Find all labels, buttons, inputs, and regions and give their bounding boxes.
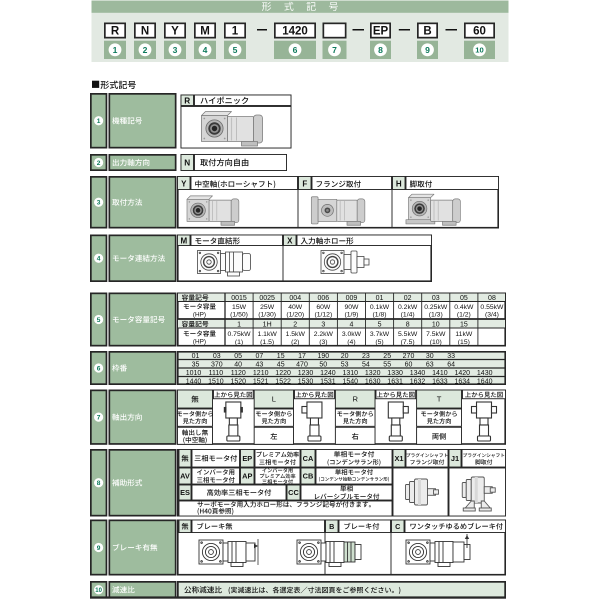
svg-text:8: 8 <box>378 45 383 55</box>
svg-text:7: 7 <box>97 415 101 422</box>
svg-text:30: 30 <box>426 353 434 360</box>
svg-text:40W: 40W <box>288 304 303 311</box>
svg-text:EP: EP <box>373 26 389 38</box>
svg-text:L: L <box>272 395 276 404</box>
svg-text:1640: 1640 <box>477 378 493 385</box>
svg-text:370: 370 <box>211 361 223 368</box>
svg-text:0.25kW: 0.25kW <box>424 304 448 311</box>
svg-text:R: R <box>111 26 120 38</box>
svg-text:1.1kW: 1.1kW <box>258 331 278 338</box>
svg-text:1631: 1631 <box>387 378 403 385</box>
svg-text:(1/50): (1/50) <box>230 312 248 319</box>
svg-text:9: 9 <box>97 545 101 552</box>
svg-text:AP: AP <box>242 472 252 481</box>
svg-text:004: 004 <box>289 295 301 302</box>
svg-text:03: 03 <box>213 353 221 360</box>
svg-text:(1/12): (1/12) <box>314 312 332 319</box>
svg-text:4: 4 <box>349 322 353 329</box>
svg-text:4: 4 <box>97 256 101 263</box>
svg-text:1632: 1632 <box>410 378 426 385</box>
svg-text:08: 08 <box>488 295 496 302</box>
svg-text:2: 2 <box>143 45 148 55</box>
svg-text:3.7kW: 3.7kW <box>370 331 390 338</box>
svg-text:55: 55 <box>383 361 391 368</box>
svg-text:0.1kW: 0.1kW <box>370 304 390 311</box>
svg-text:N: N <box>141 26 149 38</box>
svg-text:190: 190 <box>317 353 329 360</box>
svg-text:01: 01 <box>192 353 200 360</box>
svg-text:R: R <box>184 97 190 106</box>
svg-text:1220: 1220 <box>275 370 291 377</box>
svg-text:1531: 1531 <box>320 378 336 385</box>
svg-text:1.5kW: 1.5kW <box>286 331 306 338</box>
svg-text:1110: 1110 <box>209 370 224 377</box>
svg-text:01: 01 <box>376 295 384 302</box>
svg-text:45: 45 <box>277 361 285 368</box>
svg-text:ES: ES <box>180 488 190 497</box>
svg-text:(2): (2) <box>291 339 299 346</box>
svg-text:470: 470 <box>296 361 308 368</box>
svg-text:270: 270 <box>403 353 415 360</box>
svg-text:1320: 1320 <box>365 370 381 377</box>
svg-text:CC: CC <box>288 488 299 497</box>
svg-text:17: 17 <box>298 353 306 360</box>
svg-text:(1.5): (1.5) <box>260 339 274 346</box>
svg-text:5: 5 <box>378 322 382 329</box>
svg-text:15: 15 <box>460 322 468 329</box>
svg-text:07: 07 <box>256 353 264 360</box>
svg-text:C: C <box>395 522 400 531</box>
svg-text:(1/8): (1/8) <box>373 312 387 319</box>
svg-text:1: 1 <box>237 322 241 329</box>
svg-text:0.55kW: 0.55kW <box>480 304 504 311</box>
svg-text:25W: 25W <box>260 304 275 311</box>
svg-text:64: 64 <box>447 361 455 368</box>
svg-text:0.4kW: 0.4kW <box>454 304 474 311</box>
svg-text:1230: 1230 <box>298 370 314 377</box>
svg-text:X: X <box>287 237 293 246</box>
svg-text:03: 03 <box>432 295 440 302</box>
svg-text:3: 3 <box>173 45 178 55</box>
svg-text:05: 05 <box>460 295 468 302</box>
svg-text:M: M <box>200 26 210 38</box>
svg-text:009: 009 <box>346 295 358 302</box>
svg-text:006: 006 <box>318 295 330 302</box>
svg-text:25: 25 <box>383 353 391 360</box>
svg-text:1210: 1210 <box>253 370 269 377</box>
svg-text:10: 10 <box>95 588 102 594</box>
svg-text:1521: 1521 <box>253 378 269 385</box>
svg-text:1410: 1410 <box>432 370 448 377</box>
svg-text:1522: 1522 <box>275 378 291 385</box>
svg-text:5.5kW: 5.5kW <box>398 331 418 338</box>
svg-text:F: F <box>302 180 307 189</box>
svg-text:H: H <box>396 180 402 189</box>
svg-text:4: 4 <box>203 45 208 55</box>
svg-text:CB: CB <box>303 472 314 481</box>
svg-text:6: 6 <box>97 365 101 372</box>
svg-text:33: 33 <box>447 353 455 360</box>
svg-text:10: 10 <box>432 322 440 329</box>
svg-text:3: 3 <box>321 322 325 329</box>
svg-text:Y: Y <box>171 26 179 38</box>
svg-text:50: 50 <box>319 361 327 368</box>
svg-text:10: 10 <box>475 46 483 55</box>
svg-text:20: 20 <box>341 353 349 360</box>
svg-text:0025: 0025 <box>259 295 275 302</box>
svg-text:2: 2 <box>293 322 297 329</box>
svg-text:1530: 1530 <box>298 378 314 385</box>
svg-text:6: 6 <box>293 45 298 55</box>
svg-text:7: 7 <box>332 45 337 55</box>
svg-text:1340: 1340 <box>410 370 426 377</box>
svg-text:(7.5): (7.5) <box>401 339 415 346</box>
svg-text:53: 53 <box>341 361 349 368</box>
svg-text:(1/3): (1/3) <box>429 312 443 319</box>
svg-text:1430: 1430 <box>477 370 493 377</box>
svg-text:B: B <box>423 26 431 38</box>
svg-text:3.0kW: 3.0kW <box>342 331 362 338</box>
svg-text:54: 54 <box>362 361 370 368</box>
svg-text:8: 8 <box>406 322 410 329</box>
svg-text:B: B <box>329 522 334 531</box>
svg-text:(3): (3) <box>319 339 327 346</box>
svg-text:1633: 1633 <box>432 378 448 385</box>
svg-text:1630: 1630 <box>365 378 381 385</box>
svg-text:60: 60 <box>405 361 413 368</box>
svg-text:0.75kW: 0.75kW <box>228 331 252 338</box>
svg-text:5: 5 <box>97 317 101 324</box>
svg-text:3: 3 <box>97 200 101 207</box>
svg-text:63: 63 <box>426 361 434 368</box>
svg-text:1H: 1H <box>263 322 272 329</box>
svg-text:11kW: 11kW <box>455 331 472 338</box>
svg-text:N: N <box>184 159 190 168</box>
svg-text:1420: 1420 <box>282 26 308 38</box>
svg-text:60W: 60W <box>316 304 331 311</box>
svg-text:(3/4): (3/4) <box>485 312 499 319</box>
svg-text:(1/9): (1/9) <box>344 312 358 319</box>
svg-text:(1/2): (1/2) <box>457 312 471 319</box>
svg-text:1330: 1330 <box>387 370 403 377</box>
svg-text:Y: Y <box>181 180 187 189</box>
svg-text:02: 02 <box>404 295 412 302</box>
svg-text:(4): (4) <box>347 339 355 346</box>
svg-text:15: 15 <box>277 353 285 360</box>
svg-text:1010: 1010 <box>186 370 202 377</box>
svg-text:5: 5 <box>233 45 238 55</box>
svg-text:7.5kW: 7.5kW <box>426 331 446 338</box>
svg-text:60: 60 <box>473 26 486 38</box>
svg-text:(1/4): (1/4) <box>401 312 415 319</box>
svg-text:1440: 1440 <box>186 378 202 385</box>
svg-text:23: 23 <box>362 353 370 360</box>
svg-text:1540: 1540 <box>343 378 359 385</box>
svg-text:(1/20): (1/20) <box>286 312 304 319</box>
svg-text:CA: CA <box>303 454 314 463</box>
svg-text:1: 1 <box>113 45 118 55</box>
svg-text:(1): (1) <box>235 339 243 346</box>
svg-text:AV: AV <box>180 472 190 481</box>
svg-text:1240: 1240 <box>320 370 336 377</box>
svg-text:40: 40 <box>234 361 242 368</box>
svg-text:1310: 1310 <box>343 370 359 377</box>
svg-text:(15): (15) <box>458 339 470 346</box>
svg-text:43: 43 <box>256 361 264 368</box>
svg-text:05: 05 <box>234 353 242 360</box>
svg-text:9: 9 <box>425 45 430 55</box>
svg-text:EP: EP <box>242 454 252 463</box>
svg-text:1: 1 <box>97 118 101 125</box>
svg-text:J1: J1 <box>451 454 459 463</box>
svg-text:(HP): (HP) <box>193 311 206 318</box>
svg-text:1120: 1120 <box>231 370 246 377</box>
svg-text:(1/30): (1/30) <box>258 312 276 319</box>
svg-text:1634: 1634 <box>455 378 471 385</box>
svg-text:35: 35 <box>192 361 200 368</box>
svg-text:0015: 0015 <box>231 295 247 302</box>
svg-text:1: 1 <box>232 26 239 38</box>
svg-text:8: 8 <box>97 480 101 487</box>
svg-text:(10): (10) <box>430 339 442 346</box>
svg-text:R: R <box>352 395 358 404</box>
svg-text:1510: 1510 <box>208 378 224 385</box>
svg-text:M: M <box>180 237 187 246</box>
svg-text:T: T <box>437 395 442 404</box>
svg-text:2: 2 <box>97 160 101 167</box>
svg-text:2.2kW: 2.2kW <box>314 331 334 338</box>
svg-text:(HP): (HP) <box>193 339 206 346</box>
svg-text:X1: X1 <box>394 454 403 463</box>
svg-text:0.2kW: 0.2kW <box>398 304 418 311</box>
svg-text:15W: 15W <box>232 304 247 311</box>
svg-text:(5): (5) <box>375 339 383 346</box>
svg-text:1520: 1520 <box>231 378 247 385</box>
svg-text:1420: 1420 <box>455 370 471 377</box>
svg-text:90W: 90W <box>344 304 359 311</box>
